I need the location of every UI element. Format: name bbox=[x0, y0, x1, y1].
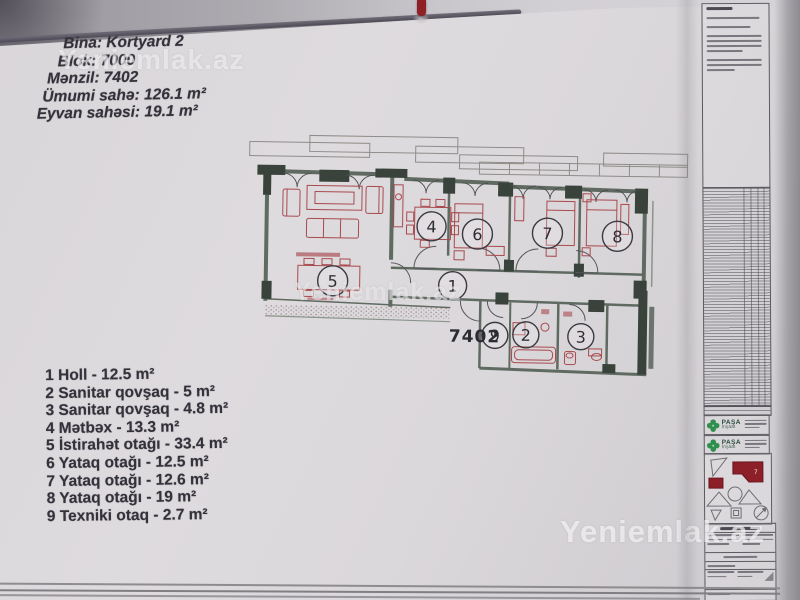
room-list-item: 1 Holl - 12.5 m² bbox=[45, 365, 228, 385]
red-pin bbox=[417, 0, 426, 16]
schedule-table bbox=[702, 187, 771, 407]
room-list-item: 3 Sanitar qovşaq - 4.8 m² bbox=[45, 400, 228, 420]
pasha-clover-icon bbox=[707, 419, 720, 432]
room-area-list: 1 Holl - 12.5 m² 2 Sanitar qovşaq - 5 m²… bbox=[45, 365, 230, 526]
room-circle-2: 2 bbox=[513, 322, 539, 348]
apartment-number-label: 7402 bbox=[449, 327, 501, 348]
svg-text:7: 7 bbox=[754, 469, 758, 476]
info-eyvan-sahesi: Eyvan sahəsi: 19.1 m² bbox=[37, 102, 207, 123]
room-list-item: 6 Yataq otağı - 12.5 m² bbox=[46, 453, 229, 473]
watermark-top: Yeniemlak.az bbox=[58, 44, 244, 76]
pasha-clover-icon bbox=[707, 439, 720, 452]
room-list-item: 7 Yataq otağı - 12.6 m² bbox=[46, 470, 229, 490]
photo-of-floorplan-sheet: { "watermarks": { "top": "Yeniemlak.az",… bbox=[0, 0, 800, 600]
room-circle-8: 8 bbox=[602, 221, 632, 251]
pasha-logo-row-1: PAŞA İnşaat bbox=[704, 415, 770, 435]
title-block-strip: PAŞA İnşaat PAŞA İnşaat bbox=[698, 1, 779, 600]
room-circle-7: 7 bbox=[532, 218, 562, 248]
svg-text:7: 7 bbox=[542, 224, 552, 243]
floor-plan-drawing: 5 4 6 7 8 1 9 2 3 7402 bbox=[244, 132, 700, 391]
svg-text:8: 8 bbox=[612, 227, 622, 246]
watermark-center: Yeniemlak.az bbox=[294, 278, 462, 307]
svg-text:3: 3 bbox=[576, 328, 586, 347]
watermark-bottom: Yeniemlak.az bbox=[560, 514, 765, 550]
svg-text:2: 2 bbox=[521, 326, 531, 345]
svg-text:6: 6 bbox=[472, 225, 482, 244]
room-circle-4: 4 bbox=[417, 212, 446, 241]
room-circle-3: 3 bbox=[568, 324, 594, 350]
general-notes-box bbox=[701, 3, 770, 188]
room-list-item: 8 Yataq otağı - 19 m² bbox=[47, 488, 230, 508]
room-list-item: 9 Texniki otaq - 2.7 m² bbox=[47, 506, 230, 526]
paper-crease bbox=[676, 0, 698, 600]
svg-text:4: 4 bbox=[426, 217, 436, 236]
floor-plan: 5 4 6 7 8 1 9 2 3 7402 bbox=[244, 132, 700, 391]
right-edge-shadow bbox=[774, 0, 800, 600]
notes-heading bbox=[706, 7, 732, 10]
room-circle-6: 6 bbox=[462, 219, 492, 249]
room-list-item: 5 İstirahət otağı - 33.4 m² bbox=[46, 435, 229, 455]
stamp-triangle bbox=[764, 572, 773, 581]
